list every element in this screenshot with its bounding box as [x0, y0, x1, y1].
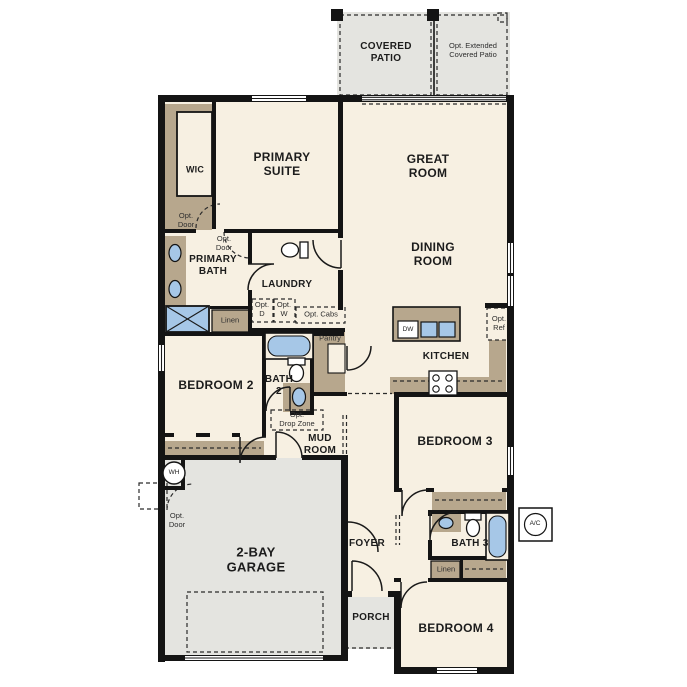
label-opt-w: Opt. W — [277, 301, 291, 319]
label-opt-door-garage: Opt. Door — [169, 512, 185, 530]
label-bath2: BATH 2 — [265, 374, 293, 398]
label-opt-door-wic: Opt. Door — [178, 212, 194, 230]
patio-post — [331, 9, 343, 21]
label-bath3: BATH 3 — [451, 538, 488, 550]
window-primary-suite — [252, 96, 306, 101]
tub-bath3 — [486, 513, 509, 560]
label-dw: DW — [403, 326, 414, 334]
label-dining-room: DINING ROOM — [411, 240, 455, 268]
kitchen-counter-right — [489, 340, 506, 377]
label-wh: WH — [169, 469, 180, 477]
shower-primary — [166, 306, 209, 332]
label-wic: WIC — [186, 165, 204, 176]
sink-bath2 — [293, 388, 306, 406]
floor-plan: COVERED PATIO Opt. Extended Covered Pati… — [0, 0, 687, 687]
label-pantry: Pantry — [319, 335, 341, 344]
window-dining-1 — [508, 243, 513, 273]
label-linen-primary: Linen — [221, 317, 239, 326]
label-laundry: LAUNDRY — [262, 279, 313, 291]
label-foyer: FOYER — [349, 538, 385, 550]
sink-primary-2 — [169, 281, 181, 298]
window-dining-2 — [508, 276, 513, 306]
toilet-bath3 — [465, 513, 481, 537]
sliding-door-great-room — [362, 96, 506, 101]
label-opt-d: Opt. D — [255, 301, 269, 319]
window-bedroom4 — [437, 668, 477, 673]
bedroom3-closet-shelf — [432, 492, 506, 510]
floor-plan-drawing — [0, 0, 687, 687]
sink-primary-1 — [169, 245, 181, 262]
label-garage: 2-BAY GARAGE — [227, 545, 286, 576]
label-bedroom4: BEDROOM 4 — [418, 621, 493, 635]
label-linen-bath3: Linen — [437, 566, 455, 575]
label-primary-bath: PRIMARY BATH — [189, 254, 237, 278]
tub-bath2 — [265, 333, 313, 359]
window-bedroom2 — [159, 345, 164, 371]
wic-closet-inner — [177, 112, 212, 196]
window-bedroom3 — [508, 447, 513, 475]
label-ac: A/C — [530, 520, 541, 528]
label-bedroom2: BEDROOM 2 — [178, 378, 253, 392]
label-primary-suite: PRIMARY SUITE — [254, 150, 311, 178]
label-mud-room: MUD ROOM — [304, 433, 336, 457]
label-opt-ref: Opt. Ref — [492, 315, 506, 333]
sink-bath3 — [439, 518, 453, 529]
patio-post — [427, 9, 439, 21]
toilet-water-closet — [282, 242, 309, 258]
label-porch: PORCH — [352, 612, 390, 624]
garage-door-opening — [185, 656, 323, 660]
label-opt-cabs: Opt. Cabs — [304, 311, 338, 320]
range — [429, 371, 457, 395]
label-kitchen: KITCHEN — [423, 351, 470, 363]
label-bedroom3: BEDROOM 3 — [417, 434, 492, 448]
label-covered-patio: COVERED PATIO — [360, 41, 412, 65]
label-opt-drop-zone: Opt. Drop Zone — [279, 411, 314, 429]
label-opt-extended-patio: Opt. Extended Covered Patio — [449, 42, 497, 60]
label-great-room: GREAT ROOM — [407, 152, 450, 180]
label-opt-door-bath: Opt. Door — [216, 235, 232, 253]
pantry-door-notch — [328, 344, 345, 373]
